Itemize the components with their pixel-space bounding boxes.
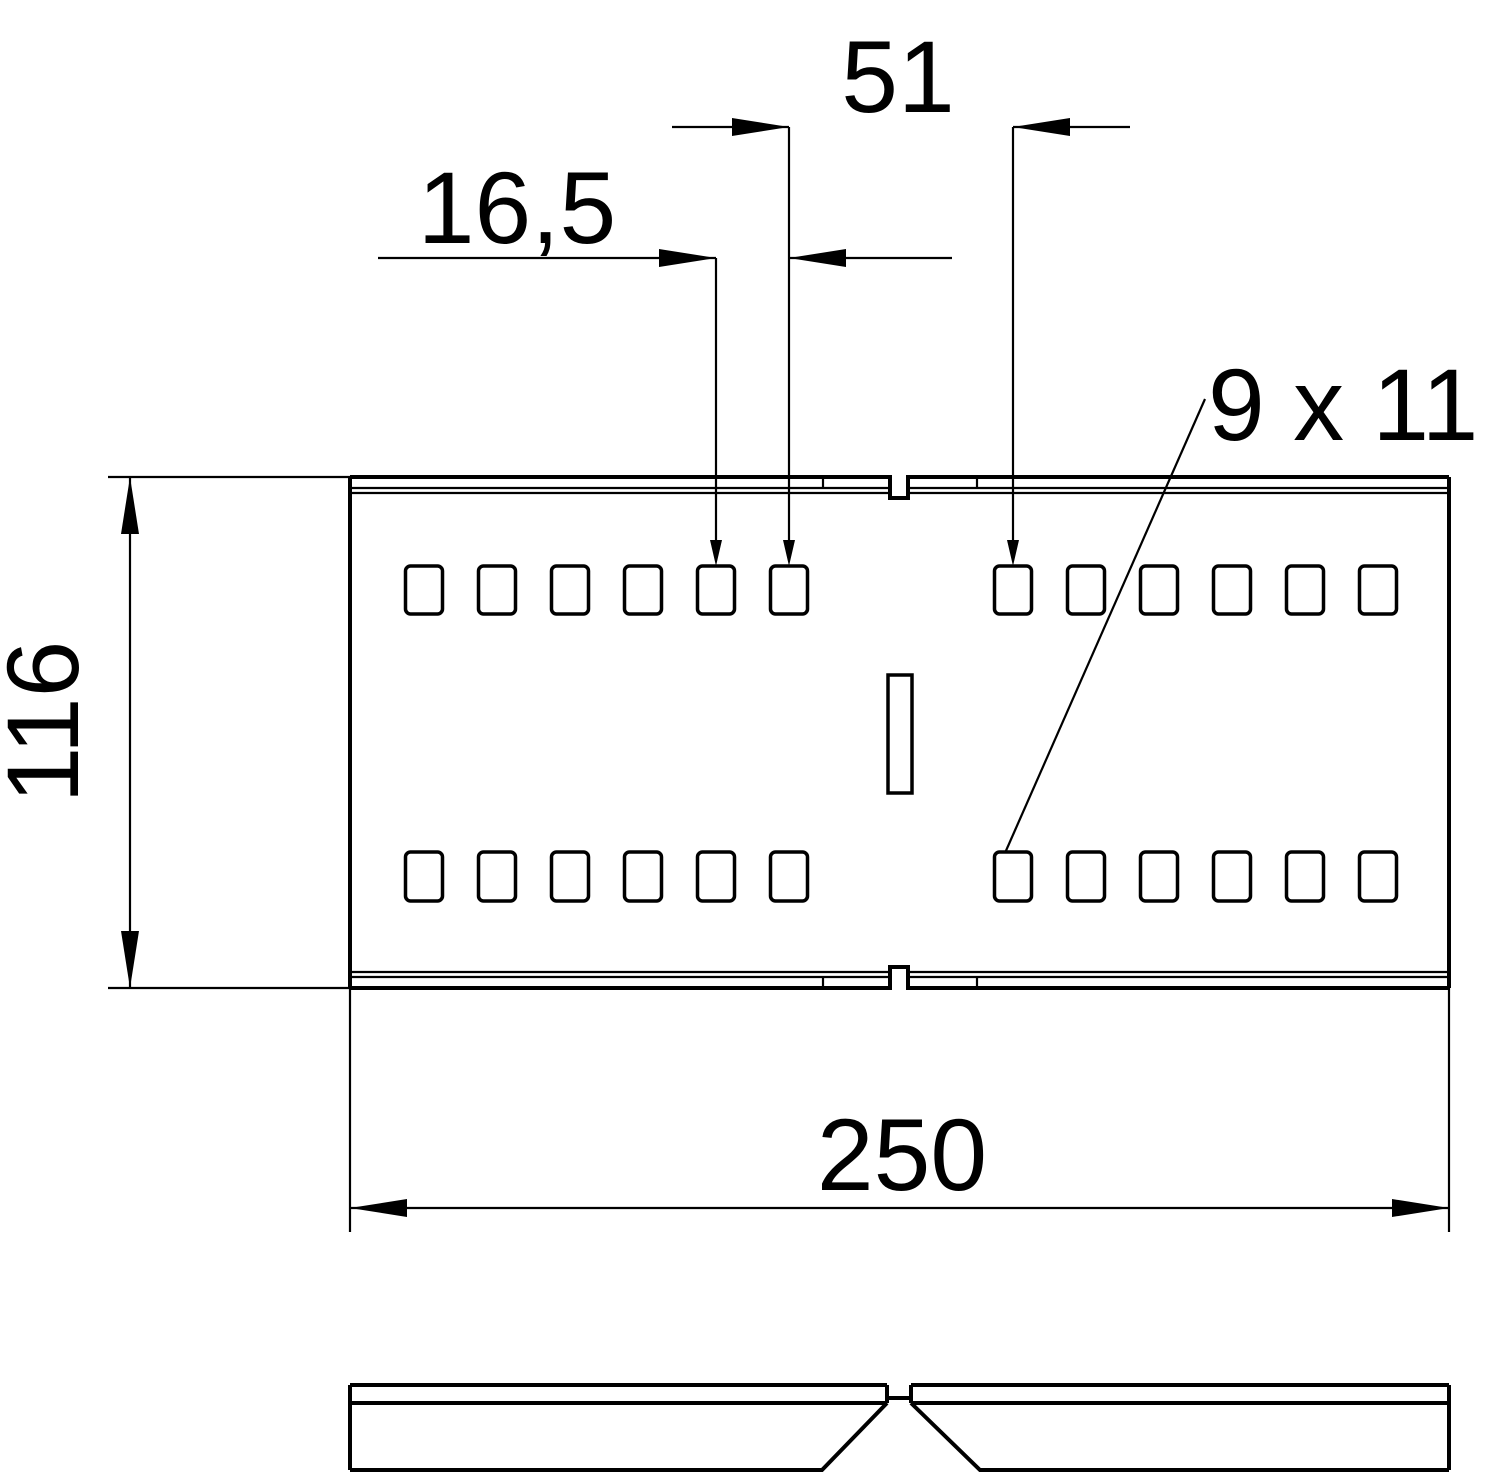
dimension-116: 116: [0, 477, 350, 988]
dimension-51: 51: [672, 20, 1130, 566]
top-rail-lines: [350, 477, 1449, 493]
technical-drawing: 51 16,5 9 x 11 116 250: [0, 0, 1500, 1475]
profile-bottom-right: [911, 1403, 1449, 1470]
top-view: [350, 477, 1449, 988]
center-slot: [888, 675, 912, 793]
side-view: [350, 1385, 1449, 1470]
hole-row-upper-left: [406, 566, 808, 614]
hole-row-upper-right: [995, 566, 1397, 614]
profile-center-notch: [887, 1385, 911, 1403]
dimension-250: 250: [350, 988, 1449, 1232]
dim-16-5-label: 16,5: [418, 151, 617, 265]
hole-size-label: 9 x 11: [1208, 348, 1478, 462]
leader-line: [1005, 399, 1205, 853]
dim-116-label: 116: [0, 641, 100, 804]
drawing-canvas: 51 16,5 9 x 11 116 250: [0, 0, 1500, 1475]
profile-bottom-left: [350, 1403, 887, 1470]
bottom-rail-lines: [350, 972, 1449, 988]
hole-row-lower-left: [406, 852, 808, 901]
dim-250-label: 250: [817, 1098, 987, 1212]
label-hole-size: 9 x 11: [1005, 348, 1478, 853]
dim-51-label: 51: [841, 20, 954, 134]
hole-row-lower-right: [995, 852, 1397, 901]
dimension-16-5: 16,5: [378, 151, 952, 566]
